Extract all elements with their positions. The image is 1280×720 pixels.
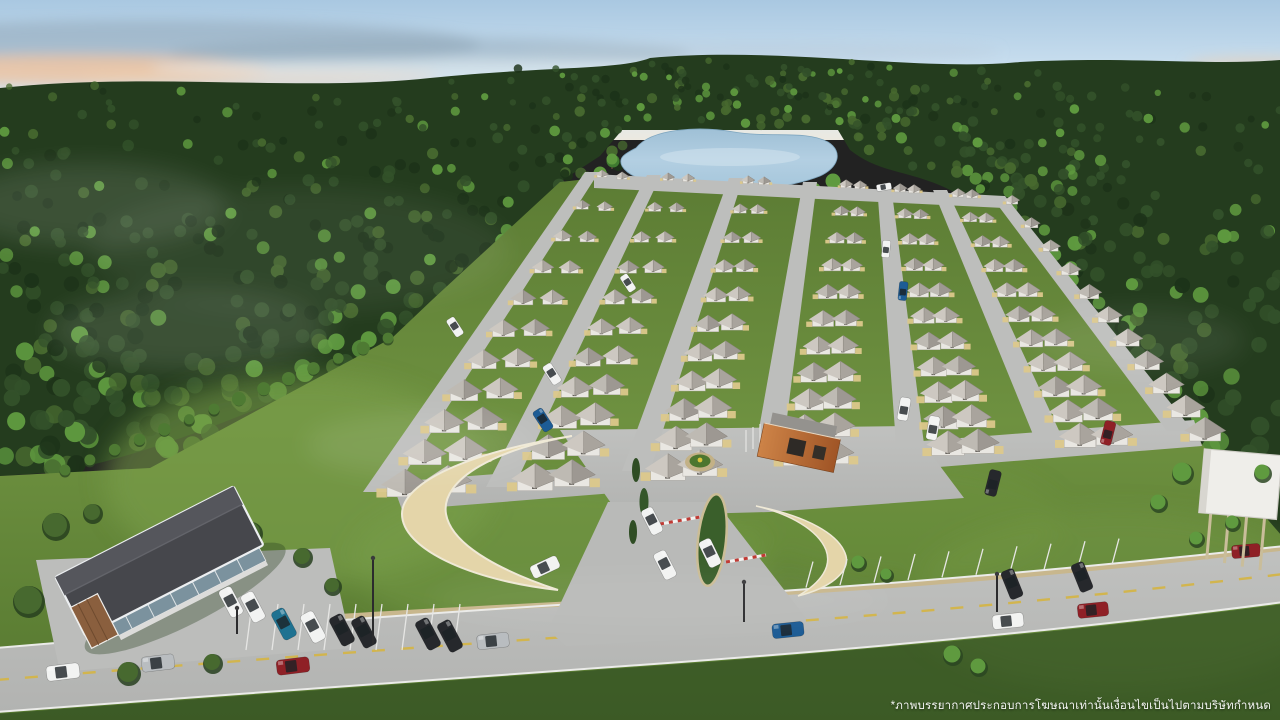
car	[1077, 601, 1109, 618]
car	[1231, 543, 1261, 559]
house	[615, 172, 630, 180]
car	[898, 281, 909, 301]
disclaimer-text: *ภาพบรรยากาศประกอบการโฆษณาเท่านั้นเงื่อน…	[891, 699, 1271, 713]
car	[881, 240, 891, 258]
house	[907, 185, 923, 194]
scene-svg	[0, 0, 1280, 720]
car	[476, 632, 509, 650]
house	[891, 184, 907, 193]
estate-render: *ภาพบรรยากาศประกอบการโฆษณาเท่านั้นเงื่อน…	[0, 0, 1280, 720]
house	[853, 181, 868, 189]
car	[992, 612, 1025, 630]
